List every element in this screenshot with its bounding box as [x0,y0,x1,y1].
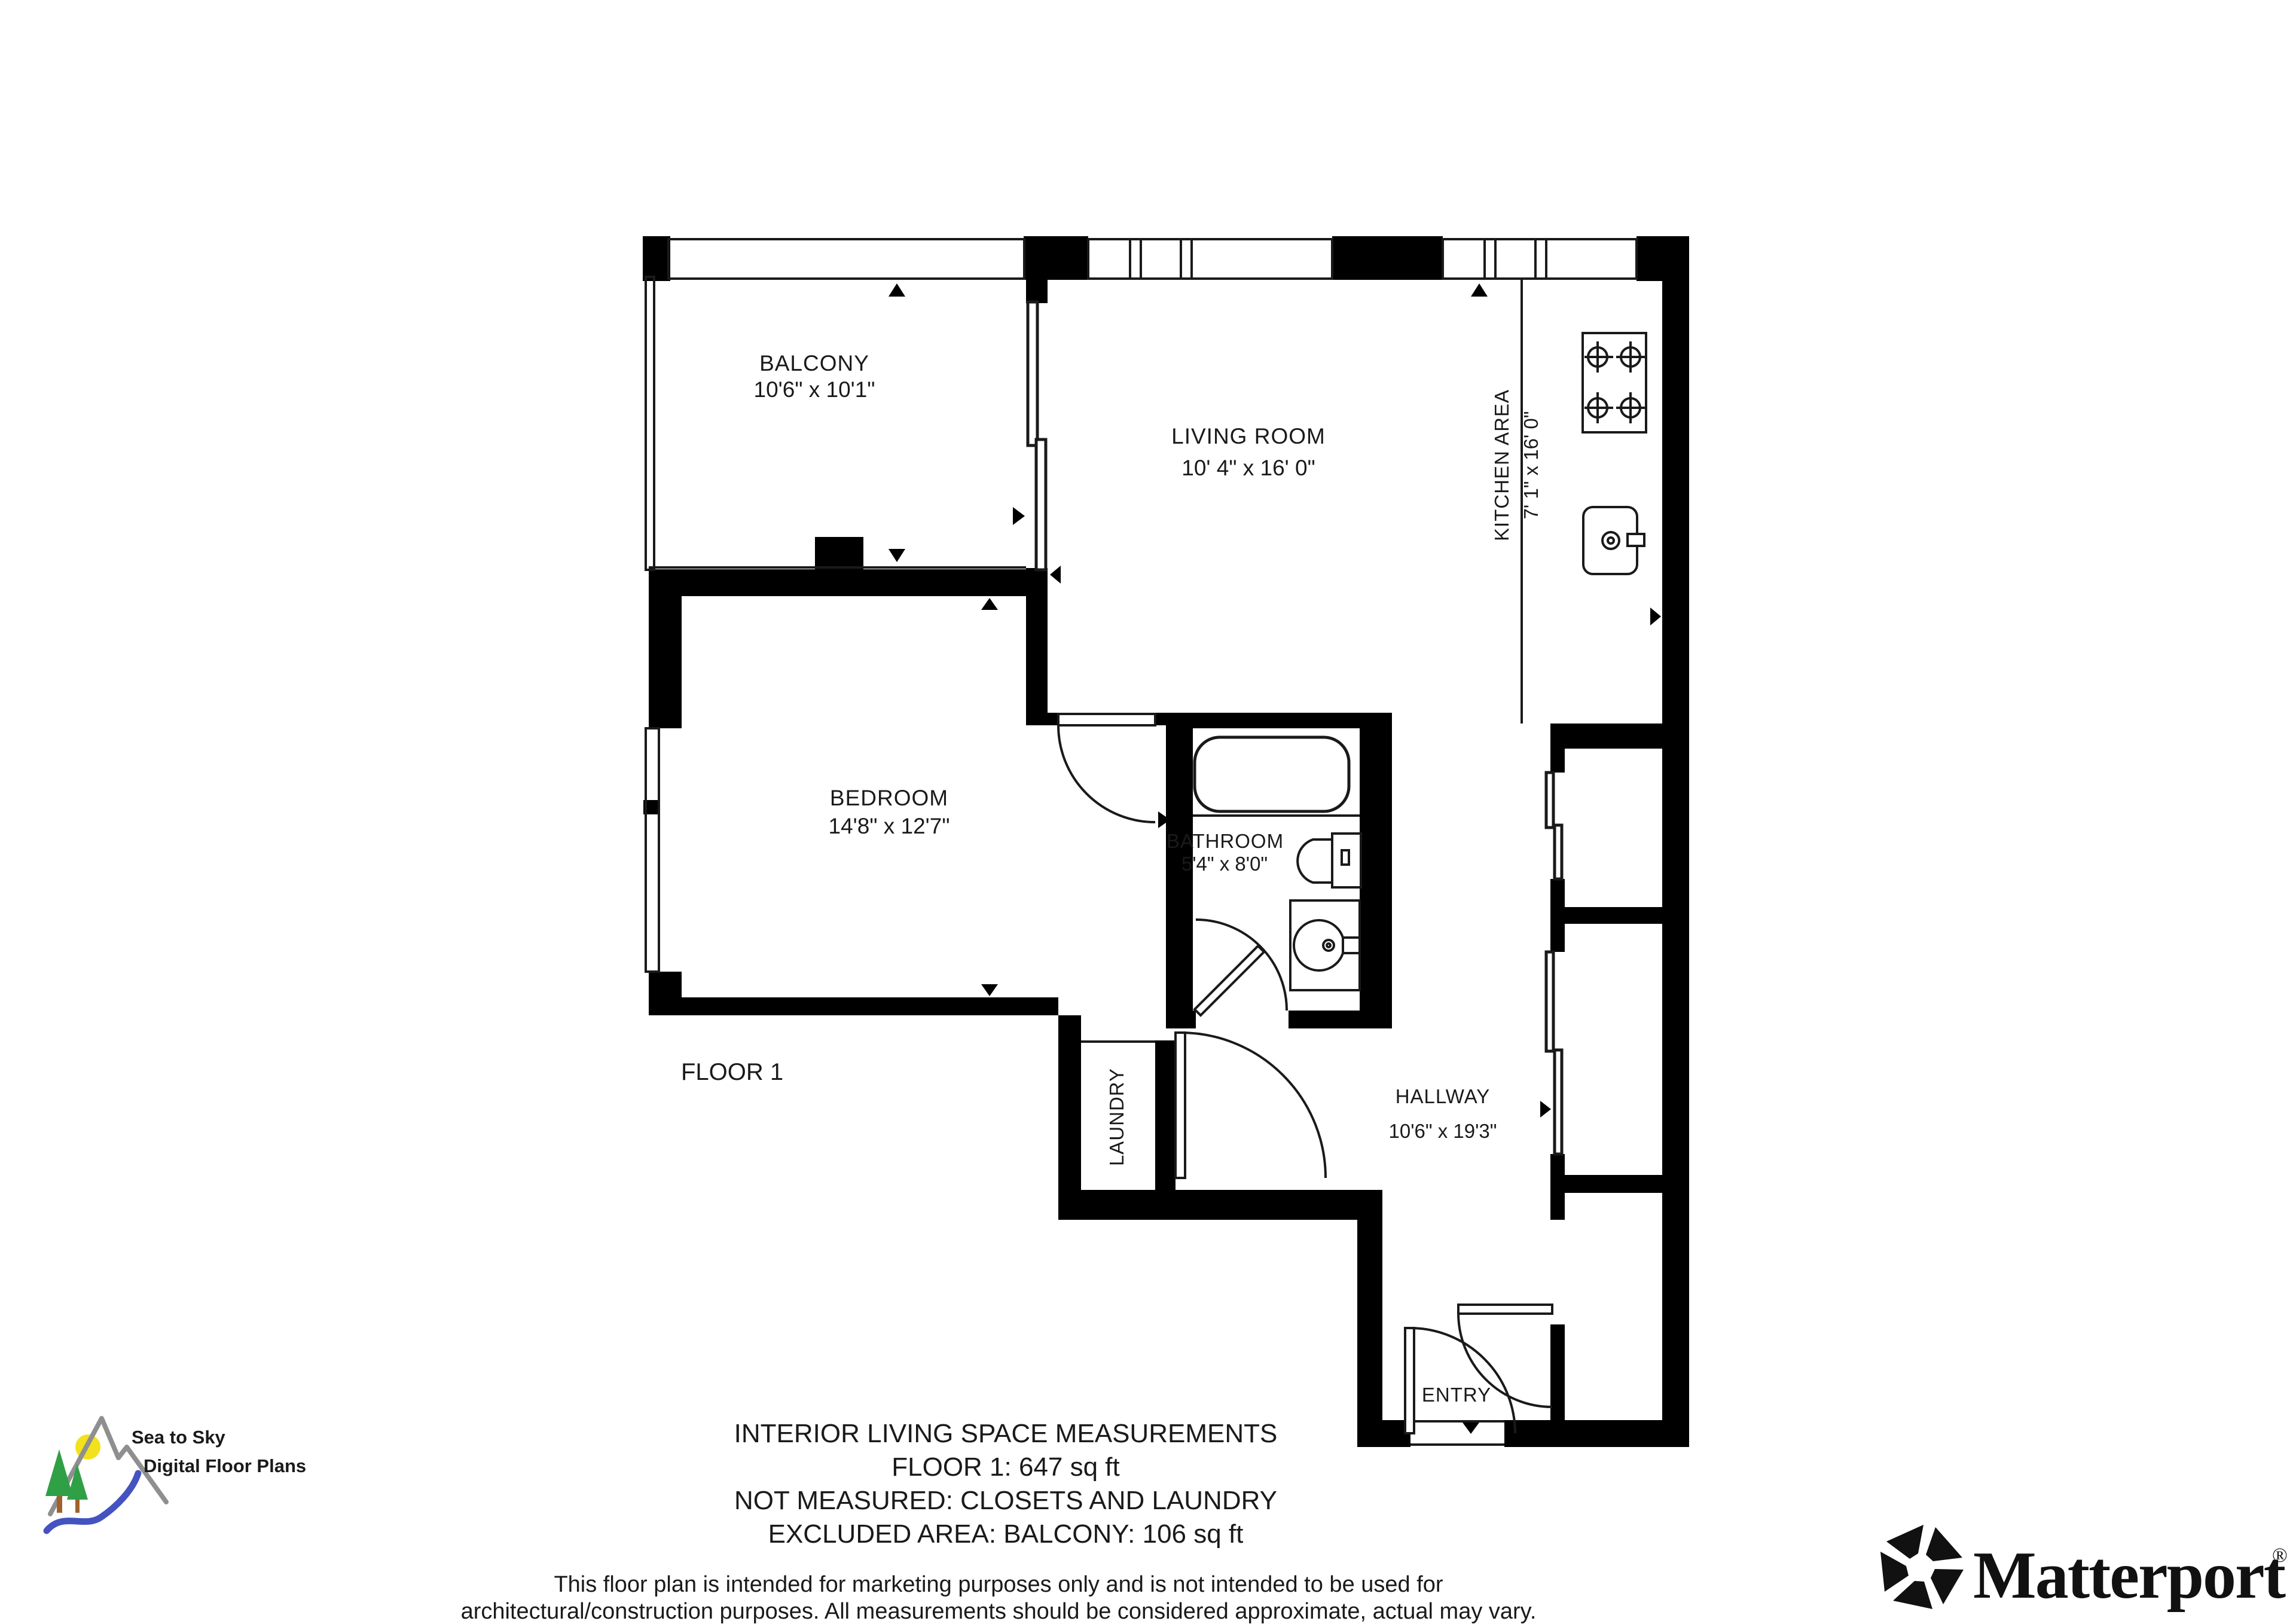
arrow-up-livingroom-window [1471,283,1488,297]
kitchen-label: KITCHEN AREA [1491,389,1513,541]
bedroom-dims: 14'8" x 12'7" [829,814,950,838]
bedroom-door [1058,714,1155,822]
summary-line-2: FLOOR 1: 647 sq ft [891,1452,1120,1482]
sea-to-sky-logo: Sea to Sky Digital Floor Plans [45,1418,306,1531]
living-room-window-1 [1088,239,1332,279]
bathroom-dims: 5'4" x 8'0" [1181,853,1268,875]
closet2-slider-panel [1546,952,1553,1051]
balcony-railing-left [646,277,654,570]
balcony-dims: 10'6" x 10'1" [754,377,875,402]
arrow-right-slider [1013,507,1025,525]
arrow-down-bedroom [981,984,998,996]
summary-line-4: EXCLUDED AREA: BALCONY: 106 sq ft [768,1519,1244,1549]
disclaimer-line-1: This floor plan is intended for marketin… [554,1572,1443,1597]
room-labels: BALCONY 10'6" x 10'1" LIVING ROOM 10' 4"… [681,351,1542,1406]
kitchen-sink-icon [1583,507,1644,574]
floorplan-page: BALCONY 10'6" x 10'1" LIVING ROOM 10' 4"… [0,0,2296,1624]
tree-trunk-icon [75,1500,80,1513]
arrow-right-hallway [1540,1101,1551,1118]
doors [1058,714,1552,1433]
laundry-label: LAUNDRY [1106,1068,1128,1166]
disclaimer-line-2: architectural/construction purposes. All… [461,1599,1537,1624]
living-room-dims: 10' 4" x 16' 0" [1181,456,1315,480]
balcony-label: BALCONY [759,351,869,376]
bathroom-label: BATHROOM [1167,830,1284,852]
hall-door [1176,1033,1326,1178]
windows-and-railings [646,239,1636,1445]
toilet-icon [1297,834,1361,887]
arrow-down-entry [1463,1422,1479,1434]
bathtub-icon [1193,737,1360,816]
hallway-label: HALLWAY [1396,1085,1491,1107]
matterport-wordmark: Matterport [1973,1538,2286,1613]
entry-door [1405,1328,1515,1433]
seatosky-name: Sea to Sky [132,1427,226,1448]
closet2-slider-panel [1555,1050,1562,1154]
closet1-slider-panel [1555,825,1562,879]
summary-line-3: NOT MEASURED: CLOSETS AND LAUNDRY [734,1486,1277,1515]
disclaimer: This floor plan is intended for marketin… [461,1572,1537,1624]
bathroom-door [1195,920,1287,1015]
living-room-label: LIVING ROOM [1171,424,1326,448]
bedroom-label: BEDROOM [830,786,948,810]
floorplan-canvas: BALCONY 10'6" x 10'1" LIVING ROOM 10' 4"… [0,0,2296,1624]
floor-label: FLOOR 1 [681,1059,783,1085]
measurement-summary: INTERIOR LIVING SPACE MEASUREMENTS FLOOR… [734,1419,1278,1549]
arrow-right-kitchen [1650,608,1661,625]
arrow-down-balcony [889,549,905,562]
arrow-left-slider [1050,566,1061,584]
living-room-window-2 [1443,239,1636,279]
kitchen-dims: 7' 1" x 16' 0" [1520,411,1542,520]
arrow-up-balcony-top [889,283,905,297]
summary-line-1: INTERIOR LIVING SPACE MEASUREMENTS [734,1419,1278,1448]
tree-icon [45,1449,73,1496]
bathroom-sink-icon [1290,900,1360,990]
matterport-logo: Matterport ® [1880,1525,2288,1613]
balcony-slider-panel-1 [1028,302,1037,445]
closet1-slider-panel [1546,773,1553,828]
registered-mark: ® [2272,1544,2288,1567]
stove-icon [1583,333,1646,432]
balcony-slider-panel-2 [1036,439,1046,570]
arrow-up-bedroom [981,598,998,610]
balcony-railing-top [668,239,1024,279]
hallway-dims: 10'6" x 19'3" [1389,1120,1497,1142]
entry-label: ENTRY [1422,1384,1491,1406]
matterport-pinwheel-icon [1880,1525,1964,1609]
seatosky-tagline: Digital Floor Plans [143,1455,306,1476]
bedroom-window [646,728,659,972]
tree-trunk-icon [57,1496,62,1513]
